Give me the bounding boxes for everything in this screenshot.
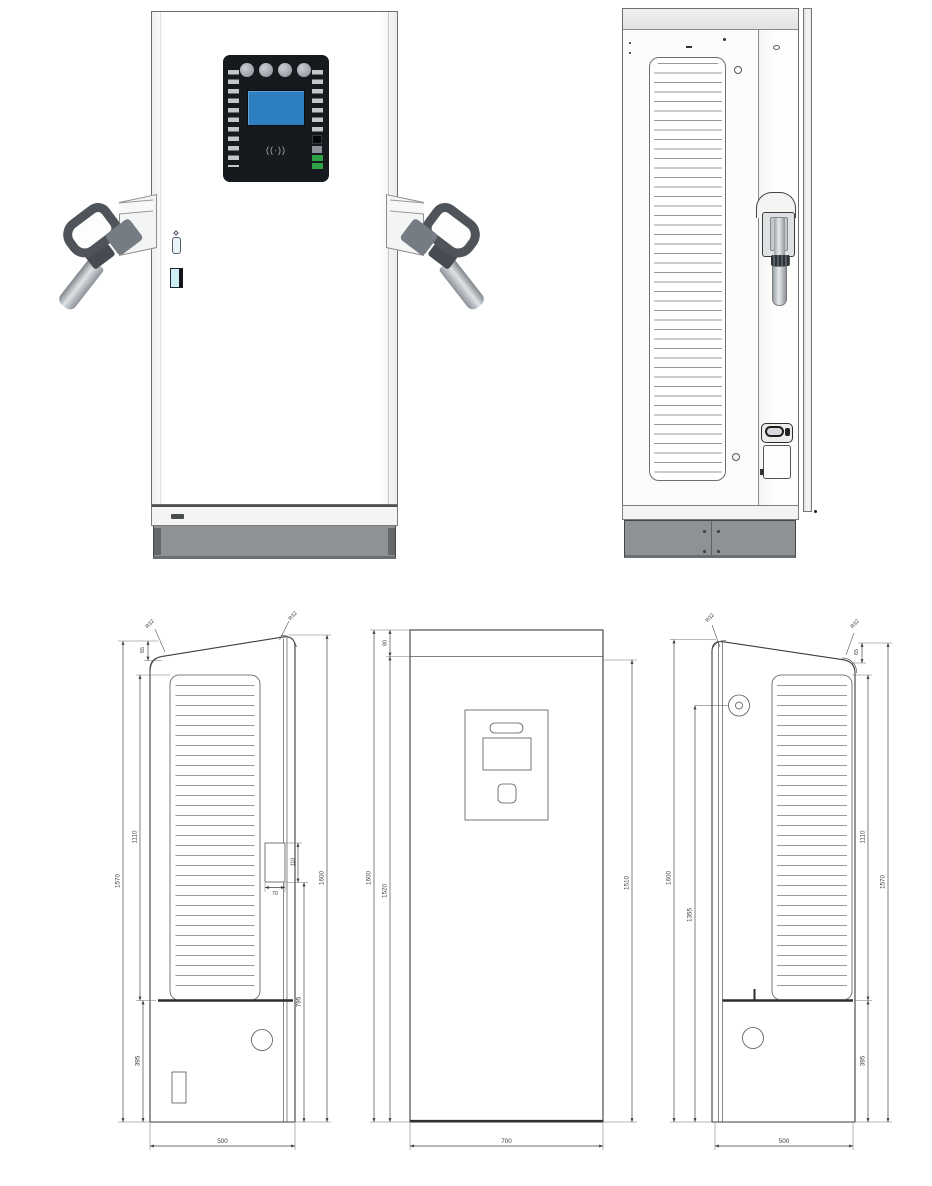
- panel-button-1[interactable]: [240, 63, 254, 77]
- louver-vent-panel: [649, 57, 726, 481]
- door-edge-dot: [814, 510, 817, 513]
- panel-button-3[interactable]: [278, 63, 292, 77]
- door-handle[interactable]: [761, 423, 793, 443]
- dim-1570-label: 1570: [880, 875, 887, 890]
- dim-395-label: 395: [135, 1055, 142, 1066]
- dim-1600-label: 1600: [319, 871, 326, 886]
- dim-1600-label: 1600: [366, 871, 373, 886]
- handle-cutout: [265, 843, 285, 882]
- dim-1570-label: 1570: [115, 874, 122, 889]
- plinth-screw-4: [717, 550, 720, 553]
- channel-divider-line: [758, 30, 759, 505]
- indicator-column-left: [228, 70, 239, 167]
- light-strip-side: [622, 505, 799, 520]
- plinth-endcap-left: [154, 528, 161, 555]
- led-green-2: [312, 163, 323, 169]
- plinth-base: [153, 526, 396, 559]
- dim-1110-label: 1110: [860, 830, 867, 844]
- plinth-endcap-right: [388, 528, 395, 555]
- indicator-gray: [312, 146, 322, 153]
- gun-nozzle-side[interactable]: [772, 266, 787, 306]
- radius-callout-right: R32: [850, 619, 861, 630]
- dim-500-label: 500: [779, 1138, 790, 1145]
- panel-button-2[interactable]: [259, 63, 273, 77]
- dim-1520-label: 1520: [382, 884, 389, 899]
- radius-callout-left: R32: [145, 619, 156, 630]
- dim-1110-label: 1110: [132, 830, 139, 844]
- rfid-reader-icon[interactable]: ((·)): [253, 145, 299, 161]
- side-render: [622, 8, 822, 560]
- top-band: [623, 9, 798, 30]
- screw-hole-top: [734, 66, 742, 74]
- dim-500-label: 500: [217, 1138, 228, 1145]
- dim-795-label: 795: [296, 996, 303, 1007]
- lcd-screen[interactable]: [247, 90, 305, 126]
- vent-slats: [176, 680, 255, 995]
- louver-slats: [654, 63, 722, 476]
- indicator-black: [312, 135, 322, 144]
- top-dot: [723, 38, 726, 41]
- radius-callout-left: R32: [705, 613, 716, 624]
- drawing-left-side-view: 1570 1110 65 395 795 1600 110 70 500 R32…: [110, 595, 340, 1165]
- dim-110-label: 110: [291, 858, 297, 867]
- drawing-right-side-view: 1600 1355 1110 1570 65 395 500 R32 R32: [660, 595, 920, 1165]
- aux-connector[interactable]: [172, 237, 181, 254]
- handle-grip: [765, 426, 784, 437]
- oval-hole: [773, 45, 780, 50]
- radius-callout-right: R32: [288, 611, 299, 622]
- dim-1355-label: 1355: [687, 908, 694, 923]
- brand-mark: [171, 514, 184, 519]
- led-green-1: [312, 155, 323, 161]
- side-dot-2: [629, 52, 631, 54]
- lock-notch: [760, 469, 764, 475]
- dim-395-label: 395: [860, 1055, 867, 1066]
- door-edge-strip: [803, 8, 812, 512]
- control-panel: ((·)): [223, 55, 329, 182]
- dim-70-label: 70: [272, 891, 278, 897]
- plinth-screw-1: [703, 530, 706, 533]
- handle-knob: [785, 428, 790, 436]
- side-dot-1: [629, 42, 631, 44]
- panel-button-4[interactable]: [297, 63, 311, 77]
- gun-knurl-band: [771, 255, 790, 266]
- plinth-screw-2: [717, 530, 720, 533]
- plinth-base-side: [624, 520, 796, 558]
- dim-1600-label: 1600: [666, 871, 673, 886]
- dim-80-label: 80: [383, 640, 389, 646]
- screw-hole-bottom: [732, 453, 740, 461]
- drawing-front-view: 1600 80 1520 1510 700: [360, 595, 640, 1165]
- plinth-screw-3: [703, 550, 706, 553]
- vent-dash-mark: [686, 46, 692, 48]
- dim-65-label: 65: [854, 649, 860, 655]
- gun-cylinder: [774, 218, 785, 256]
- dim-700-label: 700: [501, 1138, 512, 1145]
- charging-gun-right[interactable]: [376, 208, 486, 320]
- plinth-split-line: [711, 521, 712, 556]
- vent-slats: [777, 680, 847, 995]
- lock-panel[interactable]: [763, 445, 791, 479]
- dim-65-label: 65: [140, 647, 146, 653]
- light-strip: [151, 505, 398, 526]
- dim-1510-label: 1510: [624, 876, 631, 891]
- charging-gun-left[interactable]: [57, 208, 167, 320]
- ev-charger-spec-sheet: ((·)): [0, 0, 932, 1186]
- indicator-column-right: [312, 70, 323, 132]
- power-switch[interactable]: [170, 268, 183, 288]
- front-render: ((·)): [145, 8, 405, 560]
